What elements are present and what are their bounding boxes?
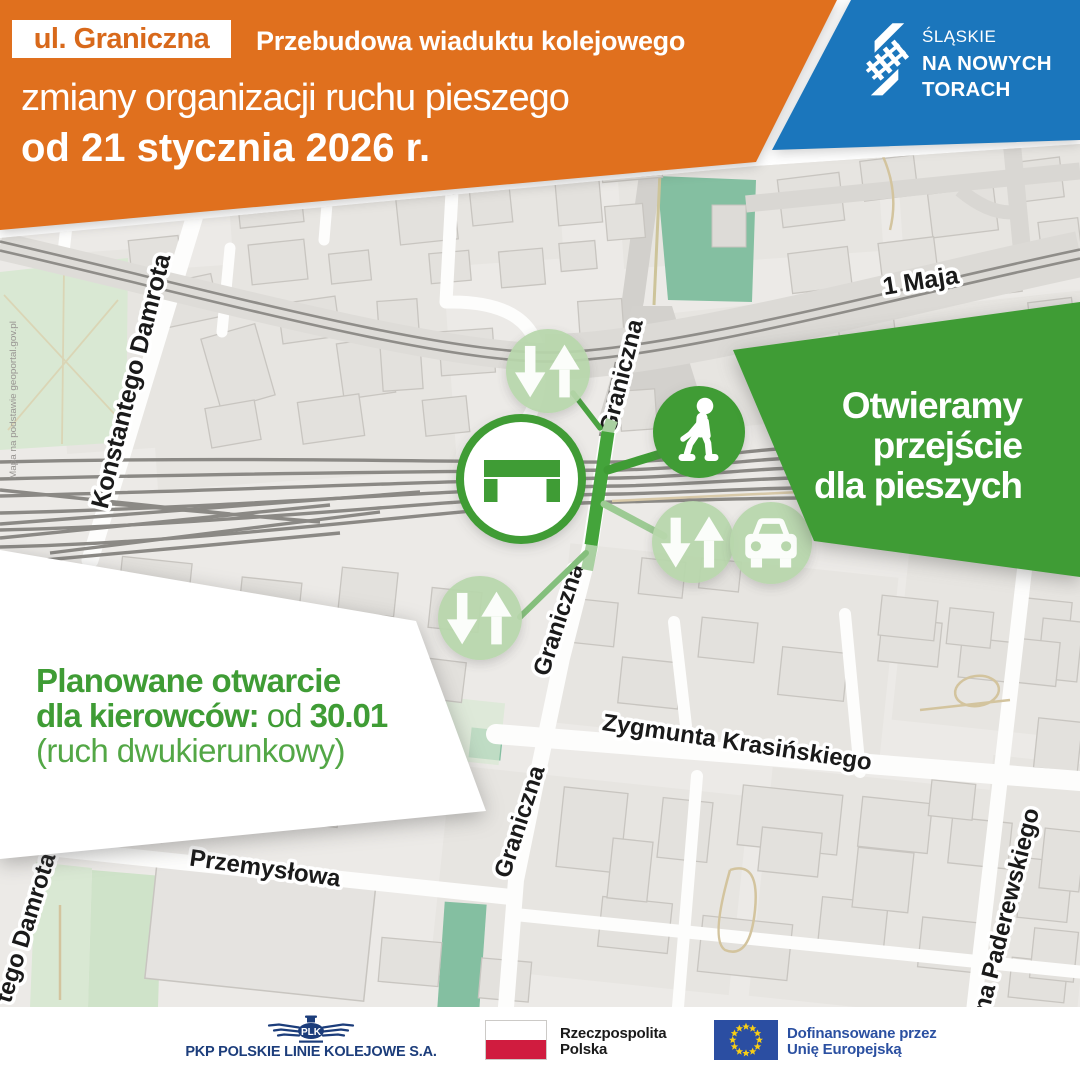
svg-text:PLK: PLK bbox=[301, 1027, 322, 1038]
